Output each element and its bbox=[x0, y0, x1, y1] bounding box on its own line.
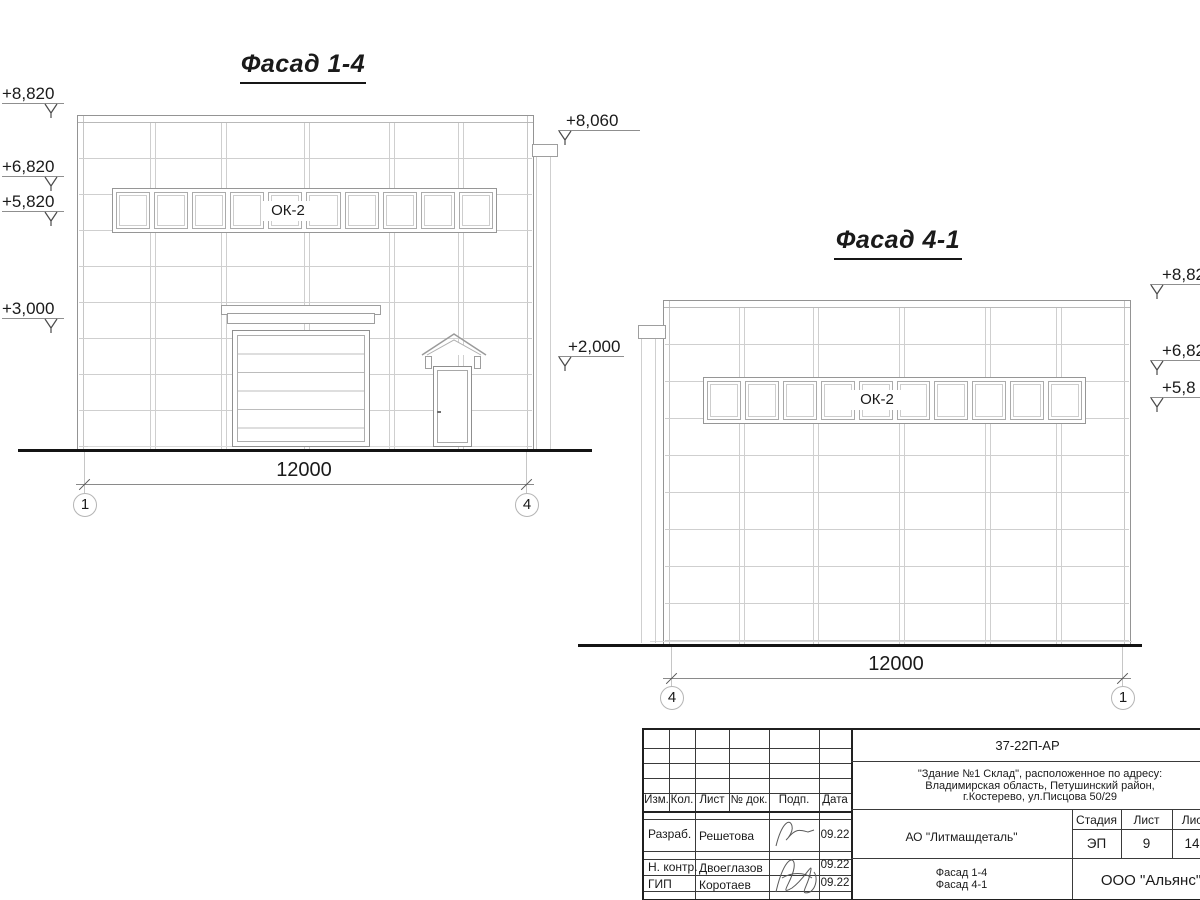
grid-line bbox=[851, 809, 1200, 810]
canopy-post bbox=[474, 356, 481, 369]
plinth-line bbox=[650, 641, 1132, 642]
witness-line bbox=[84, 452, 85, 493]
signature bbox=[768, 848, 820, 898]
dimension-value: 12000 bbox=[846, 653, 946, 676]
window-cell bbox=[707, 381, 741, 420]
elevation-mark: +8,82 bbox=[1150, 266, 1200, 285]
design-company: ООО "Альянс" bbox=[1072, 872, 1200, 889]
panel-mullion bbox=[150, 123, 156, 451]
window-cell bbox=[459, 192, 493, 229]
elevation-mark: +8,060 bbox=[558, 112, 640, 131]
gate-slats bbox=[237, 335, 365, 442]
panel-mullion bbox=[813, 308, 819, 646]
panel-mullion bbox=[1056, 308, 1062, 646]
window-cell bbox=[116, 192, 150, 229]
window-cell bbox=[154, 192, 188, 229]
elevation-value: +6,820 bbox=[2, 158, 64, 177]
sheets-label: Лис bbox=[1172, 813, 1200, 827]
window-cell bbox=[383, 192, 417, 229]
level-arrow-icon bbox=[558, 356, 572, 372]
drawing-sheet: Фасад 1-4 ОК-2 bbox=[0, 0, 1200, 900]
grid-line bbox=[644, 748, 851, 749]
row-date: 09.22 bbox=[819, 859, 851, 871]
elevation-value: +6,82 bbox=[1150, 342, 1200, 361]
gate-canopy-soffit bbox=[227, 313, 375, 324]
roof-scupper bbox=[532, 144, 558, 157]
elevation-value: +5,8 bbox=[1150, 379, 1200, 398]
row-name: Решетова bbox=[699, 829, 754, 843]
axis-bubble-1: 1 bbox=[1111, 686, 1135, 710]
window-cell bbox=[230, 192, 264, 229]
witness-line bbox=[526, 452, 527, 493]
panel-mullion bbox=[389, 123, 395, 451]
panel-mullion bbox=[221, 123, 227, 451]
level-arrow-icon bbox=[1150, 284, 1164, 300]
elevation-mark: +8,820 bbox=[2, 85, 64, 104]
elevation-value: +3,000 bbox=[2, 300, 64, 319]
downspout bbox=[641, 337, 656, 643]
ground-line bbox=[578, 644, 1142, 647]
sheet-title-line: Фасад 4-1 bbox=[851, 880, 1072, 892]
door-leaf bbox=[437, 370, 468, 443]
grid-line bbox=[1072, 829, 1200, 830]
elevation-value: +8,82 bbox=[1150, 266, 1200, 285]
elevation-mark: +5,8 bbox=[1150, 379, 1200, 398]
object-address: "Здание №1 Склад", расположенное по адре… bbox=[864, 769, 1200, 804]
customer-org: АО "Литмашдеталь" bbox=[851, 830, 1072, 844]
grid-line bbox=[644, 763, 851, 764]
doc-code: 37-22П-АР bbox=[851, 738, 1200, 753]
ground-line bbox=[18, 449, 592, 452]
elevation-value: +5,820 bbox=[2, 193, 64, 212]
window-band-label: ОК-2 bbox=[262, 201, 314, 221]
row-role: ГИП bbox=[648, 877, 672, 891]
stage-label: Стадия bbox=[1072, 813, 1121, 827]
facade-4-1-building bbox=[663, 300, 1131, 647]
window-cell bbox=[934, 381, 968, 420]
row-date: 09.22 bbox=[819, 829, 851, 841]
facade-4-1-title: Фасад 4-1 bbox=[834, 226, 962, 260]
col-podp: Подп. bbox=[769, 794, 819, 806]
col-list: Лист bbox=[695, 794, 729, 806]
level-arrow-icon bbox=[1150, 360, 1164, 376]
title-block: Изм. Кол. Лист № док. Подп. Дата Разраб.… bbox=[642, 728, 1200, 900]
elevation-value: +8,060 bbox=[558, 112, 640, 131]
level-arrow-icon bbox=[558, 130, 572, 146]
sheet-title-line: Фасад 1-4 bbox=[851, 868, 1072, 880]
stage-value: ЭП bbox=[1072, 836, 1121, 851]
grid-line bbox=[644, 778, 851, 779]
row-name: Коротаев bbox=[699, 878, 751, 892]
grid-line bbox=[644, 819, 851, 820]
window-cell bbox=[783, 381, 817, 420]
window-cell bbox=[1010, 381, 1044, 420]
elevation-value: +2,000 bbox=[558, 338, 624, 357]
row-date: 09.22 bbox=[819, 877, 851, 889]
level-arrow-icon bbox=[44, 176, 58, 192]
door-handle bbox=[437, 411, 441, 413]
axis-bubble-1: 1 bbox=[73, 493, 97, 517]
window-band-label: ОК-2 bbox=[851, 390, 903, 410]
entry-door bbox=[433, 366, 472, 447]
downspout bbox=[536, 155, 551, 449]
dimension-line bbox=[76, 484, 534, 485]
panel-mullion bbox=[899, 308, 905, 646]
grid-line bbox=[644, 811, 851, 813]
level-arrow-icon bbox=[1150, 397, 1164, 413]
level-arrow-icon bbox=[44, 318, 58, 334]
window-cell bbox=[972, 381, 1006, 420]
window-cell bbox=[1048, 381, 1082, 420]
elevation-mark: +6,82 bbox=[1150, 342, 1200, 361]
col-kol: Кол. bbox=[669, 794, 695, 806]
panel-mullion bbox=[985, 308, 991, 646]
elevation-mark: +5,820 bbox=[2, 193, 64, 212]
facade-1-4-title: Фасад 1-4 bbox=[240, 50, 366, 84]
grid-line bbox=[851, 858, 1200, 859]
sheet-number: 9 bbox=[1121, 836, 1172, 851]
elevation-mark: +6,820 bbox=[2, 158, 64, 177]
row-name: Двоеглазов bbox=[699, 861, 763, 875]
address-line: "Здание №1 Склад", расположенное по адре… bbox=[864, 769, 1200, 781]
elevation-value: +8,820 bbox=[2, 85, 64, 104]
witness-line bbox=[1122, 647, 1123, 687]
address-line: г.Костерево, ул.Писцова 50/29 bbox=[864, 792, 1200, 804]
sectional-gate bbox=[232, 330, 370, 447]
window-cell bbox=[821, 381, 855, 420]
dimension-line bbox=[663, 678, 1131, 679]
canopy-post bbox=[425, 356, 432, 369]
axis-bubble-4: 4 bbox=[660, 686, 684, 710]
dimension-value: 12000 bbox=[254, 459, 354, 482]
window-cell bbox=[192, 192, 226, 229]
sheet-label: Лист bbox=[1121, 813, 1172, 827]
window-cell bbox=[421, 192, 455, 229]
roof-scupper bbox=[638, 325, 666, 339]
sheet-title: Фасад 1-4 Фасад 4-1 bbox=[851, 868, 1072, 891]
witness-line bbox=[671, 647, 672, 687]
window-cell bbox=[745, 381, 779, 420]
door-gable-canopy bbox=[419, 331, 489, 357]
elevation-mark: +2,000 bbox=[558, 338, 624, 357]
window-cell bbox=[345, 192, 379, 229]
col-izm: Изм. bbox=[644, 794, 669, 806]
col-ndok: № док. bbox=[729, 794, 769, 806]
sheets-total: 14 bbox=[1172, 836, 1200, 851]
row-role: Н. контр. bbox=[648, 860, 698, 874]
level-arrow-icon bbox=[44, 103, 58, 119]
elevation-mark: +3,000 bbox=[2, 300, 64, 319]
row-role: Разраб. bbox=[648, 827, 691, 841]
col-data: Дата bbox=[819, 794, 851, 806]
axis-bubble-4: 4 bbox=[515, 493, 539, 517]
panel-mullion bbox=[739, 308, 745, 646]
signature bbox=[770, 814, 818, 852]
level-arrow-icon bbox=[44, 211, 58, 227]
grid-line bbox=[851, 761, 1200, 762]
